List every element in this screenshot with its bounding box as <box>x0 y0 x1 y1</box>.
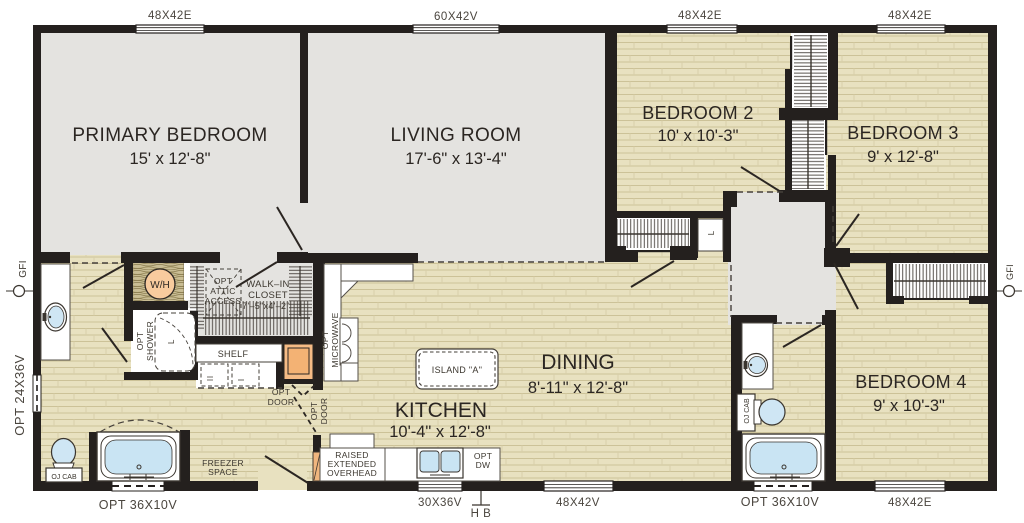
svg-text:PRIMARY BEDROOM: PRIMARY BEDROOM <box>72 125 267 146</box>
svg-text:8'-11" x 12'-8": 8'-11" x 12'-8" <box>528 379 628 397</box>
svg-text:LIVING ROOM: LIVING ROOM <box>390 125 521 146</box>
svg-text:30X36V: 30X36V <box>418 497 462 509</box>
svg-text:DW: DW <box>476 460 491 470</box>
svg-text:ACCESS: ACCESS <box>205 296 242 306</box>
svg-text:WALK–IN: WALK–IN <box>246 279 289 290</box>
svg-text:OPT: OPT <box>320 331 330 349</box>
svg-text:15' x 12'-8": 15' x 12'-8" <box>130 150 211 168</box>
svg-text:48X42E: 48X42E <box>148 10 192 22</box>
svg-text:W/H: W/H <box>150 280 169 291</box>
svg-text:9' x 12'-8": 9' x 12'-8" <box>867 148 939 166</box>
svg-text:KITCHEN: KITCHEN <box>395 399 487 422</box>
svg-text:CLOSET: CLOSET <box>248 290 288 301</box>
svg-text:DINING: DINING <box>541 351 615 374</box>
svg-text:OPT: OPT <box>272 387 290 397</box>
svg-text:BEDROOM 2: BEDROOM 2 <box>642 103 754 123</box>
svg-text:10'-4" x 12'-8": 10'-4" x 12'-8" <box>389 423 491 441</box>
svg-text:OPT 36X10V: OPT 36X10V <box>99 498 178 512</box>
svg-text:48X42E: 48X42E <box>888 497 932 509</box>
svg-text:OPT: OPT <box>214 276 232 286</box>
svg-text:OJ CAB: OJ CAB <box>51 474 77 481</box>
svg-text:ATTIC: ATTIC <box>210 286 235 296</box>
svg-text:L: L <box>167 339 176 344</box>
svg-text:OPT: OPT <box>309 402 319 420</box>
svg-text:MICROWAVE: MICROWAVE <box>330 312 340 367</box>
svg-text:H B: H B <box>471 508 492 520</box>
svg-text:48X42E: 48X42E <box>678 10 722 22</box>
svg-text:48X42V: 48X42V <box>556 497 600 509</box>
svg-text:SPACE: SPACE <box>208 467 238 477</box>
svg-text:OPT 24X36V: OPT 24X36V <box>12 354 27 435</box>
svg-text:7'–5"x4'–2": 7'–5"x4'–2" <box>242 301 290 311</box>
svg-text:BEDROOM 3: BEDROOM 3 <box>847 123 959 143</box>
svg-text:GFI: GFI <box>1005 264 1015 280</box>
svg-text:OVERHEAD: OVERHEAD <box>327 468 377 478</box>
svg-text:10' x 10'-3": 10' x 10'-3" <box>658 127 739 145</box>
svg-text:60X42V: 60X42V <box>434 11 478 23</box>
svg-text:48X42E: 48X42E <box>888 10 932 22</box>
svg-text:ISLAND "A": ISLAND "A" <box>432 365 482 375</box>
svg-text:DOOR: DOOR <box>319 398 329 425</box>
svg-text:SHOWER: SHOWER <box>145 321 155 361</box>
svg-text:BEDROOM 4: BEDROOM 4 <box>855 372 967 392</box>
svg-text:DOOR: DOOR <box>268 397 295 407</box>
svg-text:OJ CAB: OJ CAB <box>744 398 751 424</box>
svg-text:SHELF: SHELF <box>218 349 249 359</box>
svg-text:9' x 10'-3": 9' x 10'-3" <box>873 397 945 415</box>
svg-text:OPT: OPT <box>135 332 145 350</box>
svg-text:GFI: GFI <box>18 260 29 278</box>
svg-text:OPT 36X10V: OPT 36X10V <box>741 495 820 509</box>
svg-text:L: L <box>707 230 716 235</box>
svg-text:17'-6" x 13'-4": 17'-6" x 13'-4" <box>405 150 507 168</box>
